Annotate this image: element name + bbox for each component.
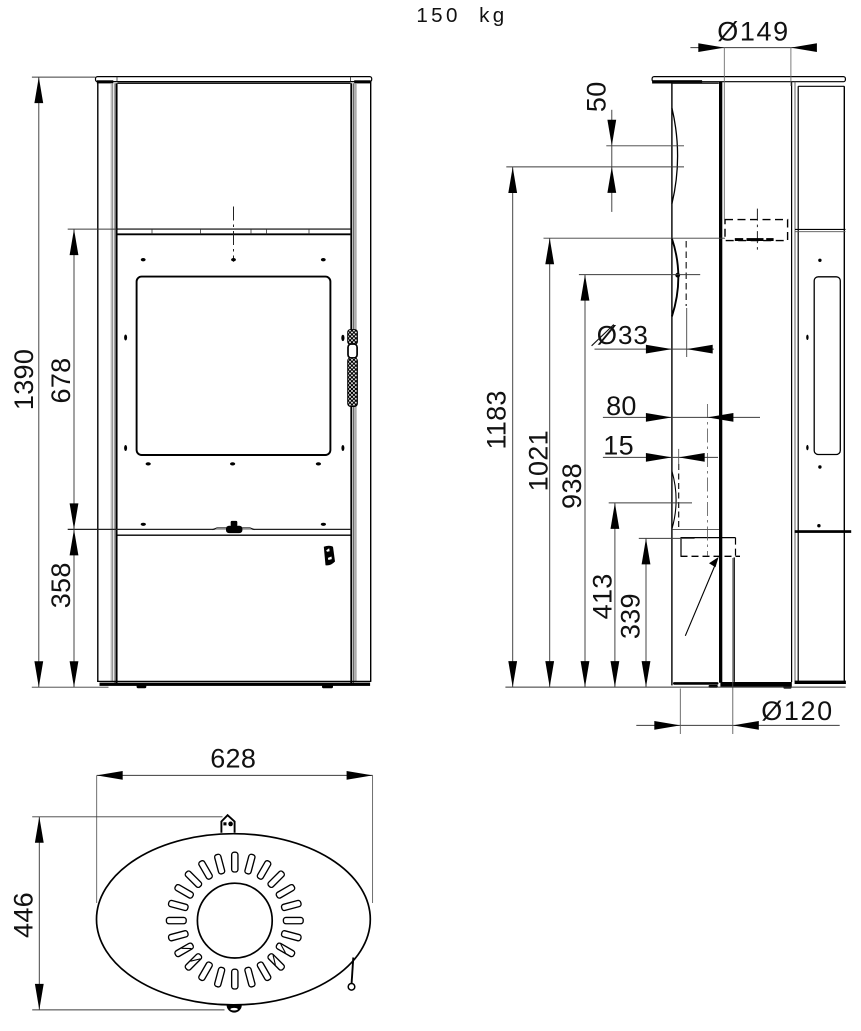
svg-text:339: 339 (616, 593, 646, 639)
svg-text:Ø33: Ø33 (597, 320, 649, 350)
svg-text:1021: 1021 (524, 430, 554, 491)
svg-text:628: 628 (210, 744, 256, 774)
svg-text:938: 938 (557, 463, 587, 509)
svg-text:413: 413 (587, 573, 617, 619)
svg-text:Ø149: Ø149 (717, 17, 789, 47)
svg-text:358: 358 (46, 562, 76, 608)
svg-text:50: 50 (581, 81, 611, 112)
svg-text:80: 80 (606, 391, 637, 421)
svg-text:678: 678 (46, 358, 76, 404)
svg-text:Ø120: Ø120 (761, 696, 833, 726)
svg-text:446: 446 (9, 892, 39, 938)
svg-text:15: 15 (603, 430, 634, 460)
svg-text:150 kg: 150 kg (416, 4, 507, 27)
svg-text:1390: 1390 (9, 349, 39, 410)
svg-text:1183: 1183 (481, 390, 511, 449)
